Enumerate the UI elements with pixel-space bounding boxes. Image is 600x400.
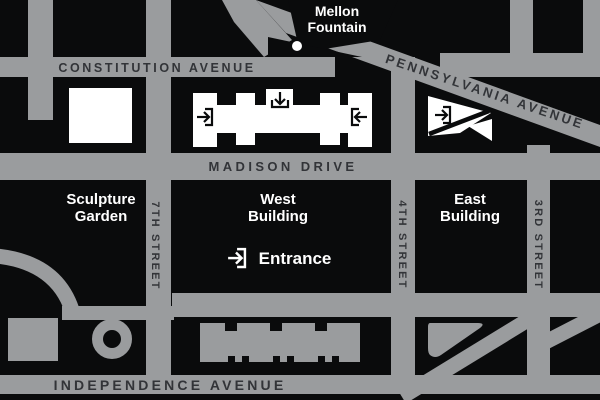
label-constitution-avenue: CONSTITUTION AVENUE bbox=[58, 61, 255, 75]
label-madison-drive: MADISON DRIVE bbox=[209, 159, 358, 174]
label-sculpture-line2: Garden bbox=[75, 208, 128, 225]
label-west-line1: West bbox=[260, 191, 296, 208]
street-ninth-street-stub bbox=[28, 0, 53, 120]
label-east-line2: Building bbox=[440, 208, 500, 225]
street-third-street-north bbox=[510, 0, 533, 77]
notch-bottom-6 bbox=[332, 356, 339, 362]
street-map: CONSTITUTION AVENUE MADISON DRIVE INDEPE… bbox=[0, 0, 600, 400]
label-sculpture-line1: Sculpture bbox=[66, 191, 135, 208]
notch-bottom-2 bbox=[242, 356, 249, 362]
label-third-street: 3RD STREET bbox=[532, 200, 544, 290]
notch-top-1 bbox=[225, 323, 237, 331]
notch-bottom-4 bbox=[287, 356, 294, 362]
notch-bottom-5 bbox=[318, 356, 325, 362]
street-right-edge-stub bbox=[583, 0, 600, 63]
mellon-fountain-dot bbox=[292, 41, 302, 51]
notch-top-3 bbox=[315, 323, 327, 331]
label-east-line1: East bbox=[454, 191, 486, 208]
label-independence-avenue: INDEPENDENCE AVENUE bbox=[54, 377, 287, 393]
label-seventh-street: 7TH STREET bbox=[149, 201, 161, 290]
label-west-line2: Building bbox=[248, 208, 308, 225]
building-sculpture-garden-pavilion bbox=[69, 88, 132, 143]
street-seventh-street bbox=[146, 0, 171, 394]
building-southwest-square bbox=[8, 318, 58, 361]
label-fourth-street: 4TH STREET bbox=[396, 200, 408, 289]
notch-top-2 bbox=[270, 323, 282, 331]
map-canvas: CONSTITUTION AVENUE MADISON DRIVE INDEPE… bbox=[0, 0, 600, 400]
label-mellon-line1: Mellon bbox=[315, 3, 359, 19]
notch-bottom-1 bbox=[228, 356, 235, 362]
label-mellon-line2: Fountain bbox=[307, 19, 366, 35]
notch-bottom-3 bbox=[273, 356, 280, 362]
label-entrance: Entrance bbox=[259, 249, 332, 268]
